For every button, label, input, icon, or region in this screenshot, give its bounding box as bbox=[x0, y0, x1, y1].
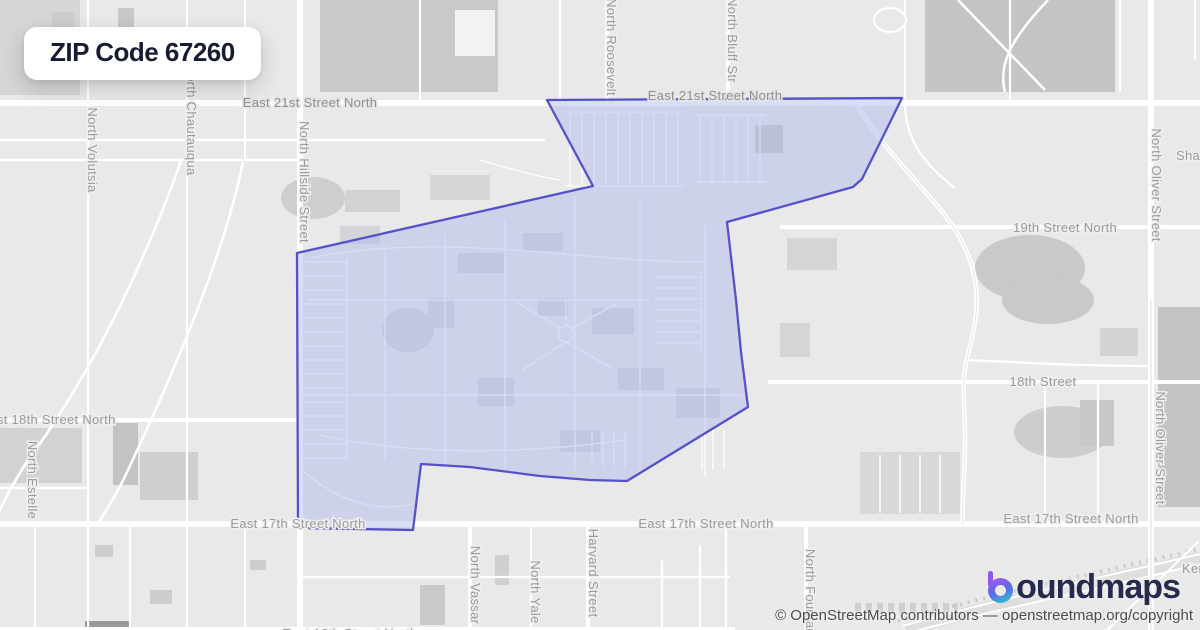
zip-code-badge: ZIP Code 67260 bbox=[24, 27, 261, 80]
street-label-oliver-lower: North Oliver Street bbox=[1153, 391, 1168, 504]
logo-b-ring bbox=[988, 578, 1013, 603]
building bbox=[140, 452, 198, 500]
building bbox=[495, 555, 509, 585]
street-label-estelle: North Estelle bbox=[25, 441, 40, 519]
boundmaps-wordmark: oundmaps bbox=[1016, 568, 1180, 607]
building bbox=[787, 238, 837, 270]
street-label-e17-right: East 17th Street North bbox=[1003, 511, 1138, 526]
map-screenshot: East 21st Street North East 21st Street … bbox=[0, 0, 1200, 630]
street-label-sha: Sha bbox=[1176, 148, 1200, 163]
street-label-harvard: Harvard Street bbox=[586, 529, 601, 618]
street-label-chautauqua: North Chautauqua bbox=[184, 64, 199, 176]
street-label-19th: 19th Street North bbox=[1013, 220, 1117, 235]
building bbox=[150, 590, 172, 604]
street-label-bluff: North Bluff Str bbox=[725, 0, 740, 83]
building bbox=[345, 190, 400, 212]
pond bbox=[1002, 276, 1094, 324]
zip-code-title: ZIP Code 67260 bbox=[50, 37, 235, 67]
street-label-e21-right: East 21st Street North bbox=[648, 88, 783, 103]
street-label-e21-left: East 21st Street North bbox=[243, 95, 378, 110]
street-label-hillside: North Hillside Street bbox=[297, 121, 312, 243]
street-label-e17-mid: East 17th Street North bbox=[638, 516, 773, 531]
landuse-block bbox=[925, 0, 1115, 92]
boundmaps-gradient-b-icon bbox=[988, 578, 1013, 603]
street-label-vassar: North Vassar bbox=[468, 546, 483, 625]
building bbox=[780, 323, 810, 357]
street-label-18th: 18th Street bbox=[1010, 374, 1077, 389]
street-label-yale: North Yale bbox=[528, 560, 543, 623]
boundmaps-logo[interactable]: oundmaps bbox=[988, 568, 1180, 607]
landuse-block bbox=[455, 10, 495, 56]
building bbox=[95, 545, 113, 557]
building bbox=[0, 428, 82, 483]
building bbox=[420, 585, 445, 625]
osm-attribution[interactable]: © OpenStreetMap contributors — openstree… bbox=[775, 607, 1193, 624]
building bbox=[1100, 328, 1138, 356]
building bbox=[250, 560, 266, 570]
street-label-roosevelt: North Roosevelt bbox=[604, 0, 619, 96]
street-label-e16: East 16th Street North bbox=[282, 626, 417, 630]
street-label-kens: Kens bbox=[1182, 561, 1200, 576]
street-label-volutsia: North Volutsia bbox=[85, 107, 100, 193]
building bbox=[430, 175, 490, 200]
map-canvas[interactable]: East 21st Street North East 21st Street … bbox=[0, 0, 1200, 630]
pond-outline bbox=[874, 8, 906, 32]
street-label-e18: East 18th Street North bbox=[0, 412, 116, 427]
street-label-e17-left: East 17th Street North bbox=[230, 516, 365, 531]
building bbox=[860, 452, 960, 514]
street-label-oliver-upper: North Oliver Street bbox=[1149, 128, 1164, 241]
pond bbox=[281, 177, 345, 219]
